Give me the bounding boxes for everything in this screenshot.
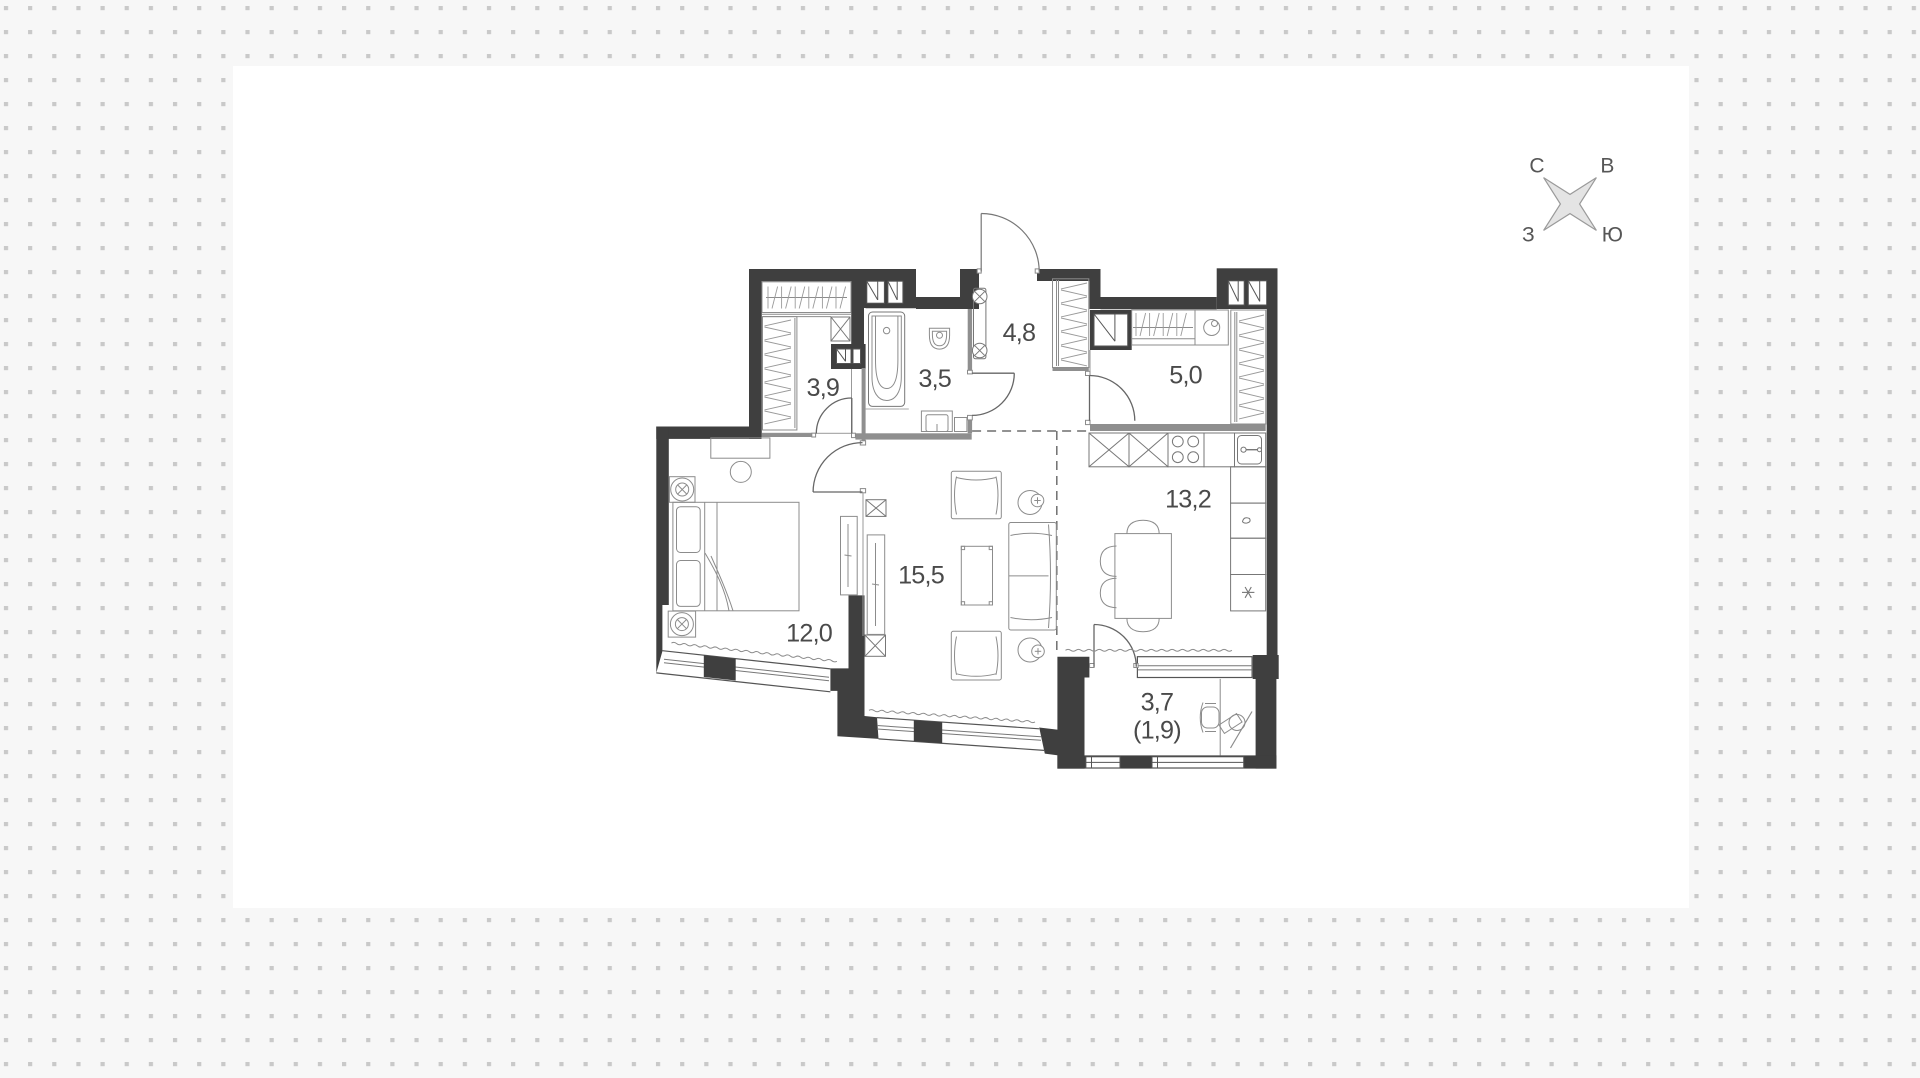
svg-text:(1,9): (1,9) bbox=[1133, 717, 1181, 745]
svg-text:13,2: 13,2 bbox=[1165, 486, 1211, 514]
svg-text:3,7: 3,7 bbox=[1141, 689, 1174, 717]
svg-text:С: С bbox=[1529, 155, 1544, 178]
svg-text:5,0: 5,0 bbox=[1169, 362, 1202, 390]
svg-text:12,0: 12,0 bbox=[786, 619, 833, 647]
svg-text:15,5: 15,5 bbox=[898, 561, 944, 589]
svg-text:3,5: 3,5 bbox=[918, 365, 951, 393]
svg-text:4,8: 4,8 bbox=[1003, 319, 1036, 347]
svg-text:В: В bbox=[1600, 155, 1613, 178]
svg-text:3,9: 3,9 bbox=[806, 374, 839, 402]
svg-text:З: З bbox=[1522, 224, 1534, 247]
svg-text:Ю: Ю bbox=[1602, 224, 1623, 247]
